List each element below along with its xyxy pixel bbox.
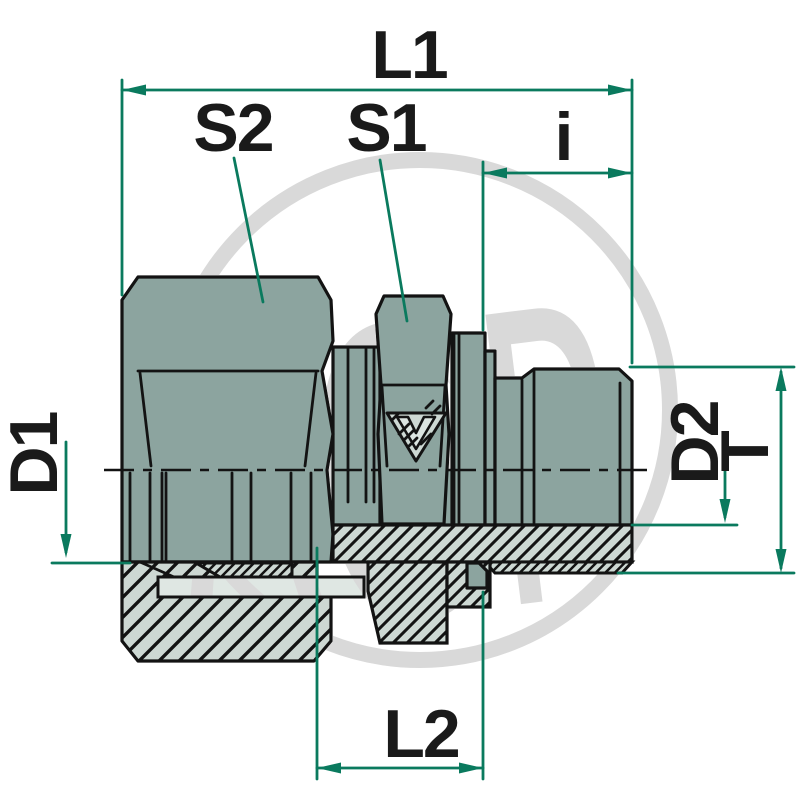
- l2-arrow-left: [317, 763, 341, 774]
- l2-arrow-right: [459, 763, 483, 774]
- dim-label-s1: S1: [346, 90, 425, 166]
- dim-label-i: i: [555, 99, 572, 175]
- watermark-text: AGP: [140, 223, 643, 740]
- fitting-technical-drawing: AGP L1 S2 S1: [0, 0, 800, 800]
- dim-label-d1: D1: [0, 412, 72, 495]
- d1-arrow: [61, 534, 72, 558]
- dim-label-l2: L2: [383, 696, 459, 772]
- i-arrow-right: [608, 168, 632, 179]
- t-arrow: [720, 499, 731, 523]
- watermark: AGP: [140, 160, 670, 740]
- dim-label-t: T: [707, 431, 783, 472]
- dim-label-l1: L1: [371, 17, 447, 93]
- d2-arrow-down: [776, 549, 787, 573]
- dim-label-s2: S2: [193, 90, 272, 166]
- d2-arrow-up: [776, 367, 787, 391]
- l1-arrow-left: [122, 85, 146, 96]
- l1-arrow-right: [608, 85, 632, 96]
